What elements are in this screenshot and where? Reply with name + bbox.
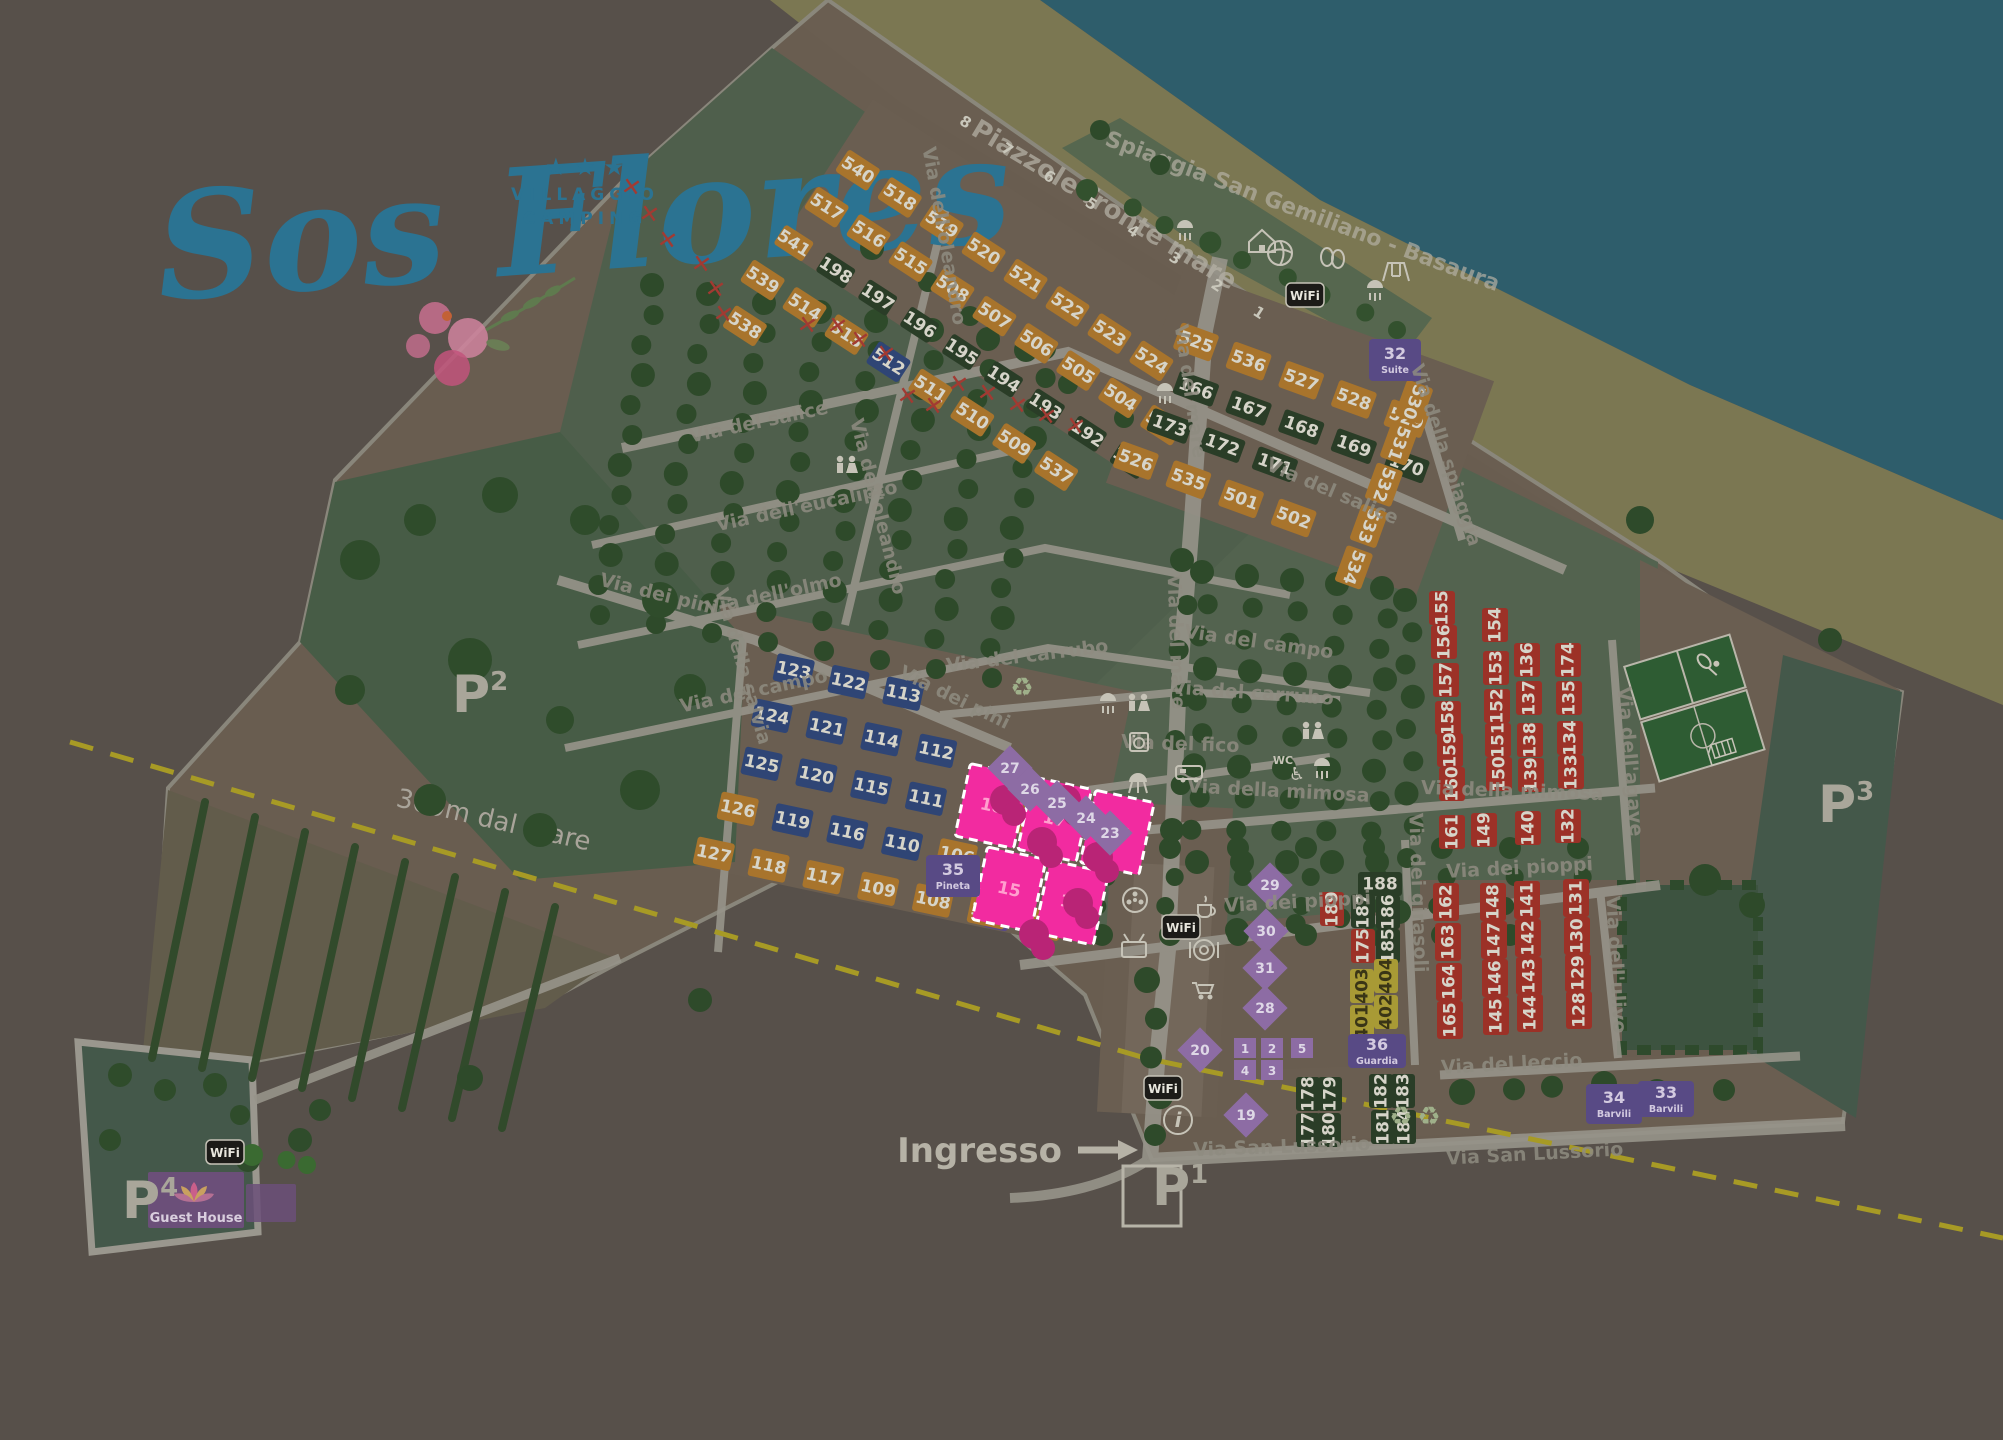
logo-camping: CAMPING <box>523 209 648 229</box>
svg-text:33: 33 <box>1655 1083 1677 1102</box>
wifi-icon: WiFi <box>1162 915 1200 939</box>
svg-text:155: 155 <box>1433 590 1453 626</box>
lot-142[interactable]: 142 <box>1515 919 1541 957</box>
svg-text:140: 140 <box>1519 810 1539 846</box>
lot-157[interactable]: 157 <box>1433 662 1459 698</box>
lot-159[interactable]: 159 <box>1437 732 1463 768</box>
lot-162[interactable]: 162 <box>1433 883 1459 921</box>
svg-text:32: 32 <box>1384 344 1406 363</box>
recycle-icon: ♻ <box>1417 1102 1440 1132</box>
svg-text:131: 131 <box>1567 880 1587 916</box>
lot-175[interactable]: 175 <box>1351 928 1375 964</box>
street-name: Via del fico <box>1121 731 1240 757</box>
svg-text:149: 149 <box>1475 812 1495 848</box>
svg-text:179: 179 <box>1321 1076 1341 1112</box>
logo-stars: ★ ★ ★ <box>545 153 625 181</box>
svg-text:143: 143 <box>1520 958 1540 994</box>
lot-5[interactable]: 5 <box>1291 1038 1313 1058</box>
svg-text:28: 28 <box>1255 1001 1274 1017</box>
poi-35[interactable]: 35Pineta <box>926 855 980 897</box>
lot-128[interactable]: 128 <box>1566 991 1592 1029</box>
svg-text:1: 1 <box>1241 1042 1249 1056</box>
svg-text:163: 163 <box>1439 924 1459 960</box>
svg-text:404: 404 <box>1377 958 1397 994</box>
svg-text:146: 146 <box>1486 960 1506 996</box>
svg-text:34: 34 <box>1603 1088 1625 1107</box>
svg-text:Barvili: Barvili <box>1649 1104 1683 1115</box>
svg-text:3: 3 <box>1268 1064 1276 1078</box>
entrance-label: Ingresso <box>897 1131 1062 1171</box>
svg-text:175: 175 <box>1354 928 1374 964</box>
svg-text:31: 31 <box>1255 961 1274 977</box>
svg-text:142: 142 <box>1519 920 1539 956</box>
svg-text:Pineta: Pineta <box>936 881 970 892</box>
svg-text:36: 36 <box>1366 1035 1388 1054</box>
lot-129[interactable]: 129 <box>1565 954 1591 992</box>
svg-text:165: 165 <box>1441 1002 1461 1038</box>
lot-154[interactable]: 154 <box>1482 607 1508 643</box>
guest-house-label: Guest House <box>150 1211 243 1226</box>
svg-text:♻: ♻ <box>1417 1102 1440 1132</box>
hedged-field <box>1622 885 1758 1050</box>
svg-text:134: 134 <box>1561 720 1581 756</box>
svg-text:24: 24 <box>1076 811 1096 827</box>
poi-33[interactable]: 33Barvili <box>1638 1081 1694 1117</box>
lot-163[interactable]: 163 <box>1435 923 1461 961</box>
svg-text:159: 159 <box>1441 732 1461 768</box>
lot-145[interactable]: 145 <box>1483 997 1509 1035</box>
lot-3[interactable]: 3 <box>1261 1060 1283 1080</box>
svg-text:178: 178 <box>1299 1076 1319 1112</box>
street-name: Via del mare <box>1163 574 1190 709</box>
svg-text:25: 25 <box>1047 796 1066 812</box>
svg-text:151: 151 <box>1489 722 1509 758</box>
svg-text:147: 147 <box>1485 922 1505 958</box>
svg-text:19: 19 <box>1236 1108 1255 1124</box>
wifi-icon: WiFi <box>1286 283 1324 307</box>
svg-text:148: 148 <box>1484 884 1504 920</box>
svg-text:30: 30 <box>1256 924 1276 940</box>
lot-1[interactable]: 1 <box>1234 1038 1256 1058</box>
svg-text:157: 157 <box>1437 662 1457 698</box>
svg-text:2: 2 <box>1268 1042 1276 1056</box>
lot-132[interactable]: 132 <box>1555 808 1581 844</box>
lot-135[interactable]: 135 <box>1556 680 1582 716</box>
svg-text:i: i <box>1175 1108 1183 1132</box>
lot-147[interactable]: 147 <box>1481 921 1507 959</box>
svg-text:WiFi: WiFi <box>1290 289 1320 303</box>
poi-36[interactable]: 36Guardia <box>1348 1034 1406 1068</box>
svg-text:141: 141 <box>1518 882 1538 918</box>
svg-text:130: 130 <box>1568 918 1588 954</box>
svg-text:138: 138 <box>1521 722 1541 758</box>
lot-134[interactable]: 134 <box>1557 720 1583 756</box>
svg-text:27: 27 <box>1000 761 1019 777</box>
svg-text:135: 135 <box>1560 680 1580 716</box>
lot-143[interactable]: 143 <box>1516 957 1542 995</box>
svg-text:20: 20 <box>1190 1043 1210 1059</box>
svg-text:WiFi: WiFi <box>1148 1082 1178 1096</box>
lot-179[interactable]: 179 <box>1318 1076 1342 1112</box>
lot-186[interactable]: 186 <box>1376 894 1400 930</box>
lot-178[interactable]: 178 <box>1296 1076 1320 1112</box>
lot-402[interactable]: 402 <box>1374 994 1398 1030</box>
svg-text:164: 164 <box>1440 964 1460 1000</box>
lot-130[interactable]: 130 <box>1564 917 1590 955</box>
svg-text:35: 35 <box>942 860 964 879</box>
lot-136[interactable]: 136 <box>1514 642 1540 678</box>
lot-174[interactable]: 174 <box>1555 642 1581 678</box>
svg-text:161: 161 <box>1443 814 1463 850</box>
lot-158[interactable]: 158 <box>1435 700 1461 736</box>
map-svg: Sos Flores ★ ★ ★ VILLAGGIO CAMPING Spiag… <box>0 0 2003 1440</box>
lot-404[interactable]: 404 <box>1374 958 1398 994</box>
lot-161[interactable]: 161 <box>1439 814 1465 850</box>
svg-text:153: 153 <box>1487 650 1507 686</box>
lot-138[interactable]: 138 <box>1517 722 1543 758</box>
svg-text:5: 5 <box>1298 1042 1306 1056</box>
svg-text:Barvili: Barvili <box>1597 1109 1631 1120</box>
svg-text:186: 186 <box>1379 894 1399 930</box>
lot-149[interactable]: 149 <box>1471 812 1497 848</box>
svg-text:23: 23 <box>1100 826 1119 842</box>
svg-text:174: 174 <box>1559 642 1579 678</box>
lot-148[interactable]: 148 <box>1480 883 1506 921</box>
svg-text:403: 403 <box>1353 968 1373 1004</box>
lot-403[interactable]: 403 <box>1350 968 1374 1004</box>
svg-text:♻: ♻ <box>1389 1102 1412 1132</box>
svg-text:402: 402 <box>1377 994 1397 1030</box>
lot-144[interactable]: 144 <box>1517 994 1543 1032</box>
lot-146[interactable]: 146 <box>1482 959 1508 997</box>
lot-4[interactable]: 4 <box>1234 1060 1256 1080</box>
lot-165[interactable]: 165 <box>1437 1001 1463 1039</box>
lot-151[interactable]: 151 <box>1485 722 1511 758</box>
recycle-icon: ♻ <box>1389 1102 1412 1132</box>
lot-153[interactable]: 153 <box>1483 650 1509 686</box>
svg-text:WiFi: WiFi <box>1166 921 1196 935</box>
svg-text:♿: ♿ <box>1289 764 1305 785</box>
svg-text:145: 145 <box>1487 998 1507 1034</box>
svg-text:4: 4 <box>1241 1064 1249 1078</box>
wifi-icon: WiFi <box>1144 1076 1182 1100</box>
svg-text:129: 129 <box>1569 955 1589 991</box>
svg-text:♻: ♻ <box>1010 673 1033 703</box>
recycle-icon: ♻ <box>1010 673 1033 703</box>
svg-text:Guardia: Guardia <box>1356 1056 1398 1067</box>
lot-140[interactable]: 140 <box>1515 810 1541 846</box>
lot-131[interactable]: 131 <box>1563 879 1589 917</box>
lot-152[interactable]: 152 <box>1484 688 1510 724</box>
svg-text:WiFi: WiFi <box>210 1146 240 1160</box>
svg-text:137: 137 <box>1520 680 1540 716</box>
wifi-icon: WiFi <box>206 1140 244 1164</box>
lot-156[interactable]: 156 <box>1431 624 1457 660</box>
svg-text:144: 144 <box>1521 995 1541 1031</box>
lot-141[interactable]: 141 <box>1514 881 1540 919</box>
poi-34[interactable]: 34Barvili <box>1586 1084 1642 1124</box>
svg-text:128: 128 <box>1570 992 1590 1028</box>
lot-137[interactable]: 137 <box>1516 680 1542 716</box>
lot-155[interactable]: 155 <box>1429 590 1455 626</box>
svg-text:136: 136 <box>1518 642 1538 678</box>
svg-text:26: 26 <box>1020 782 1039 798</box>
svg-text:158: 158 <box>1439 700 1459 736</box>
svg-text:156: 156 <box>1435 624 1455 660</box>
campground-map: Sos Flores ★ ★ ★ VILLAGGIO CAMPING Spiag… <box>0 0 2003 1440</box>
svg-text:154: 154 <box>1486 607 1506 643</box>
svg-text:Suite: Suite <box>1381 365 1409 376</box>
lot-2[interactable]: 2 <box>1261 1038 1283 1058</box>
lot-164[interactable]: 164 <box>1436 963 1462 1001</box>
svg-text:152: 152 <box>1488 688 1508 724</box>
svg-text:132: 132 <box>1559 808 1579 844</box>
svg-text:162: 162 <box>1437 884 1457 920</box>
